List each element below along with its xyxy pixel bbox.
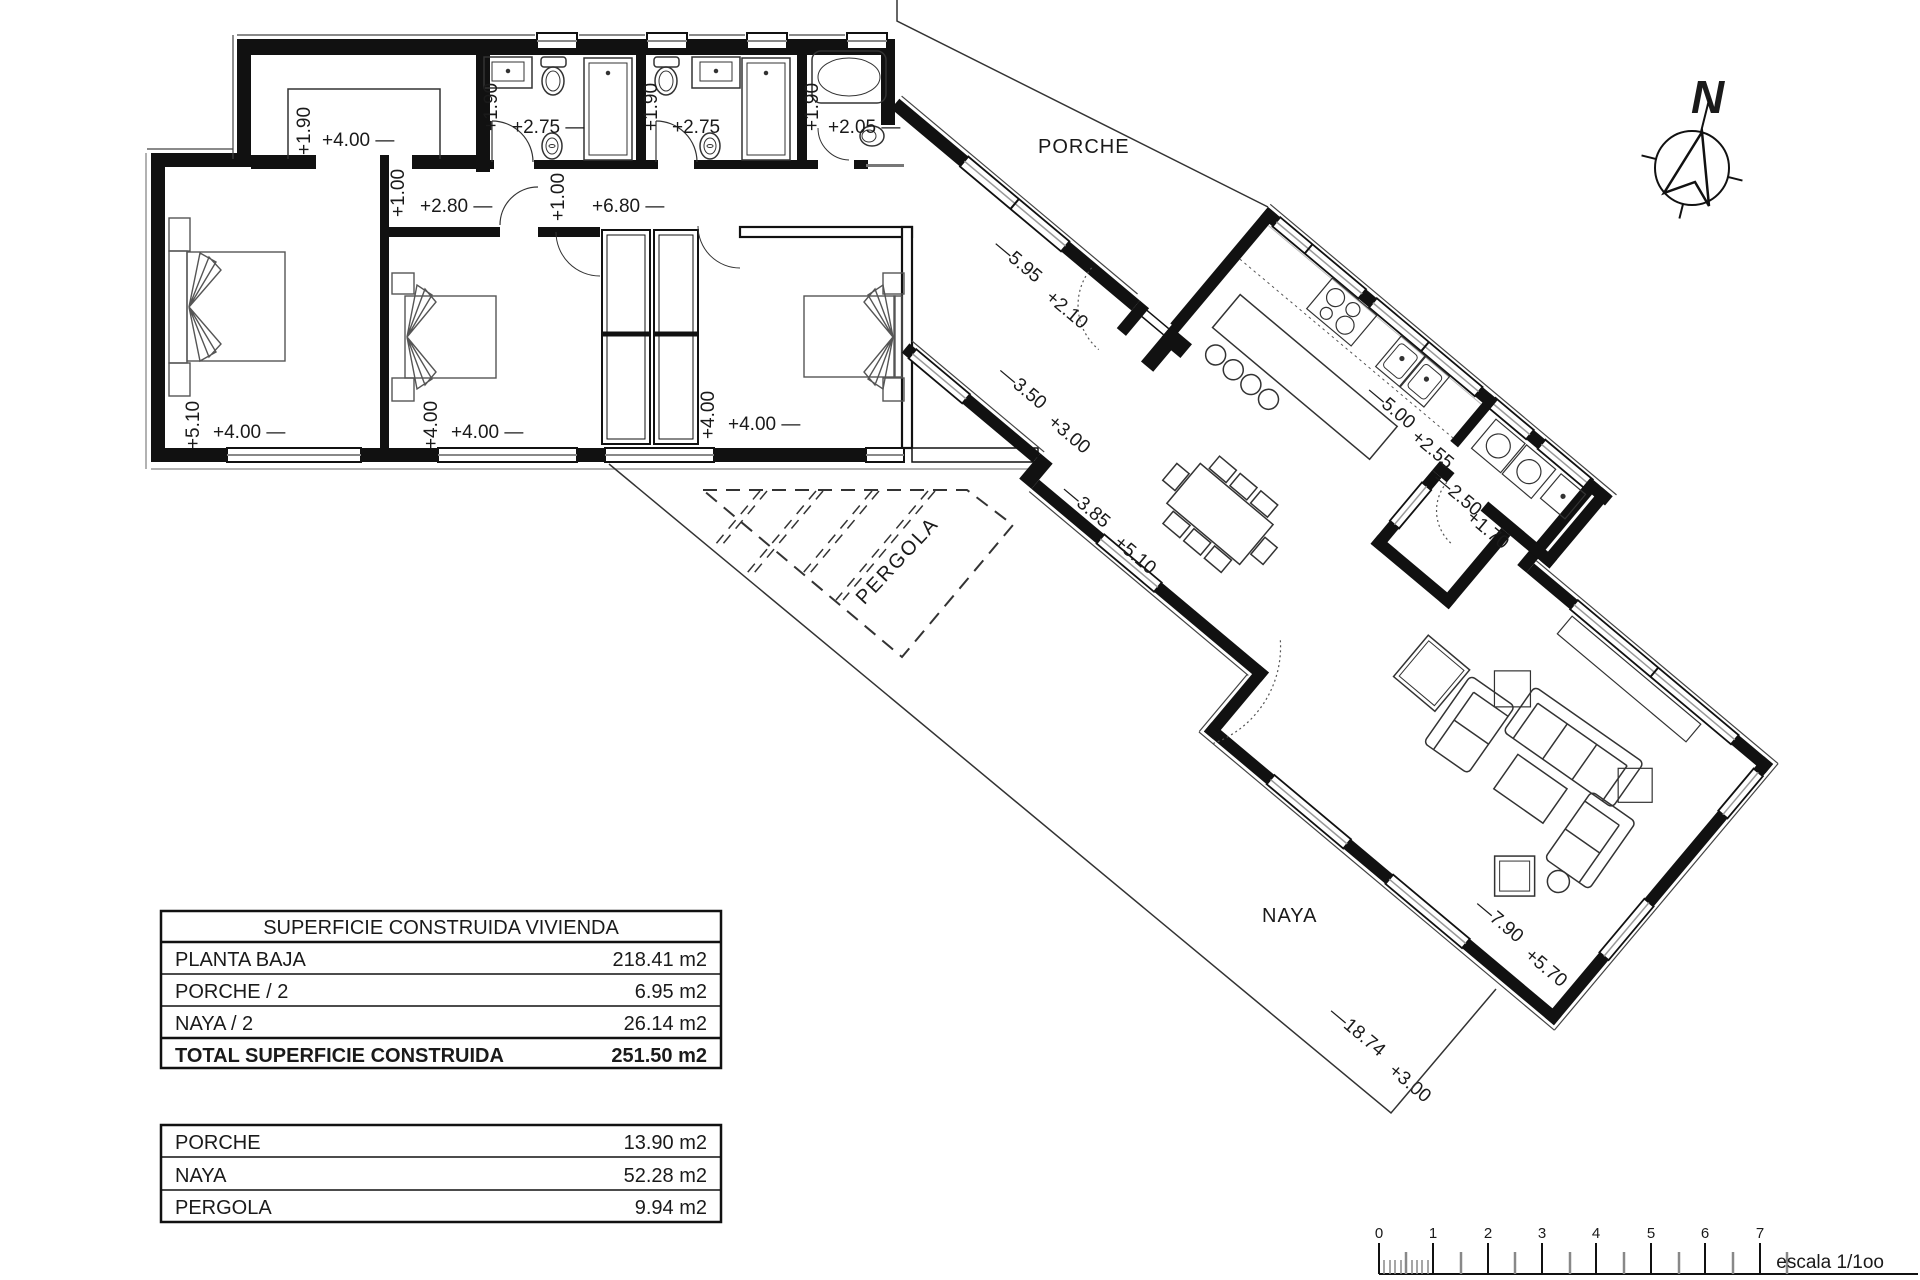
svg-text:+1.90: +1.90: [481, 83, 502, 131]
svg-text:2: 2: [1484, 1225, 1492, 1242]
svg-text:52.28 m2: 52.28 m2: [624, 1165, 707, 1187]
svg-text:1: 1: [1429, 1225, 1437, 1242]
svg-text:+1.00: +1.00: [548, 173, 569, 221]
svg-text:218.41 m2: 218.41 m2: [612, 949, 707, 971]
svg-text:4: 4: [1592, 1225, 1600, 1242]
svg-text:NAYA / 2: NAYA / 2: [175, 1013, 253, 1035]
svg-text:+4.00 —: +4.00 —: [322, 130, 394, 151]
svg-text:26.14 m2: 26.14 m2: [624, 1013, 707, 1035]
svg-text:+5.10: +5.10: [183, 401, 204, 449]
svg-text:+4.00 —: +4.00 —: [451, 422, 523, 443]
svg-text:5: 5: [1647, 1225, 1655, 1242]
svg-text:0: 0: [1375, 1225, 1383, 1242]
svg-text:13.90 m2: 13.90 m2: [624, 1132, 707, 1154]
svg-text:+4.00 —: +4.00 —: [213, 422, 285, 443]
svg-text:TOTAL SUPERFICIE CONSTRUIDA: TOTAL SUPERFICIE CONSTRUIDA: [175, 1045, 504, 1067]
svg-text:+2.80 —: +2.80 —: [420, 196, 492, 217]
svg-text:6: 6: [1701, 1225, 1709, 1242]
svg-text:9.94 m2: 9.94 m2: [635, 1197, 707, 1219]
svg-text:+1.90: +1.90: [802, 83, 823, 131]
svg-text:251.50 m2: 251.50 m2: [611, 1045, 707, 1067]
svg-text:+1.90: +1.90: [294, 107, 315, 155]
svg-text:6.95 m2: 6.95 m2: [635, 981, 707, 1003]
svg-text:PLANTA BAJA: PLANTA BAJA: [175, 949, 306, 971]
svg-text:+2.75: +2.75: [672, 117, 720, 138]
svg-text:PORCHE: PORCHE: [175, 1132, 261, 1154]
svg-text:NAYA: NAYA: [1262, 905, 1318, 927]
svg-text:escala 1/1oo: escala 1/1oo: [1776, 1252, 1884, 1273]
svg-text:SUPERFICIE CONSTRUIDA VIVIENDA: SUPERFICIE CONSTRUIDA VIVIENDA: [263, 917, 619, 939]
svg-text:+4.00: +4.00: [698, 391, 719, 439]
svg-text:3: 3: [1538, 1225, 1546, 1242]
svg-text:+6.80 —: +6.80 —: [592, 196, 664, 217]
svg-text:+4.00: +4.00: [421, 401, 442, 449]
svg-text:+4.00 —: +4.00 —: [728, 414, 800, 435]
svg-text:+2.05 —: +2.05 —: [828, 117, 900, 138]
svg-text:+1.90: +1.90: [641, 83, 662, 131]
svg-text:+1.00: +1.00: [388, 169, 409, 217]
svg-text:N: N: [1691, 71, 1725, 123]
svg-text:PERGOLA: PERGOLA: [175, 1197, 272, 1219]
svg-text:7: 7: [1756, 1225, 1764, 1242]
svg-text:+2.75 —: +2.75 —: [512, 117, 584, 138]
svg-text:PORCHE: PORCHE: [1038, 136, 1130, 158]
svg-text:PORCHE / 2: PORCHE / 2: [175, 981, 288, 1003]
svg-text:NAYA: NAYA: [175, 1165, 227, 1187]
